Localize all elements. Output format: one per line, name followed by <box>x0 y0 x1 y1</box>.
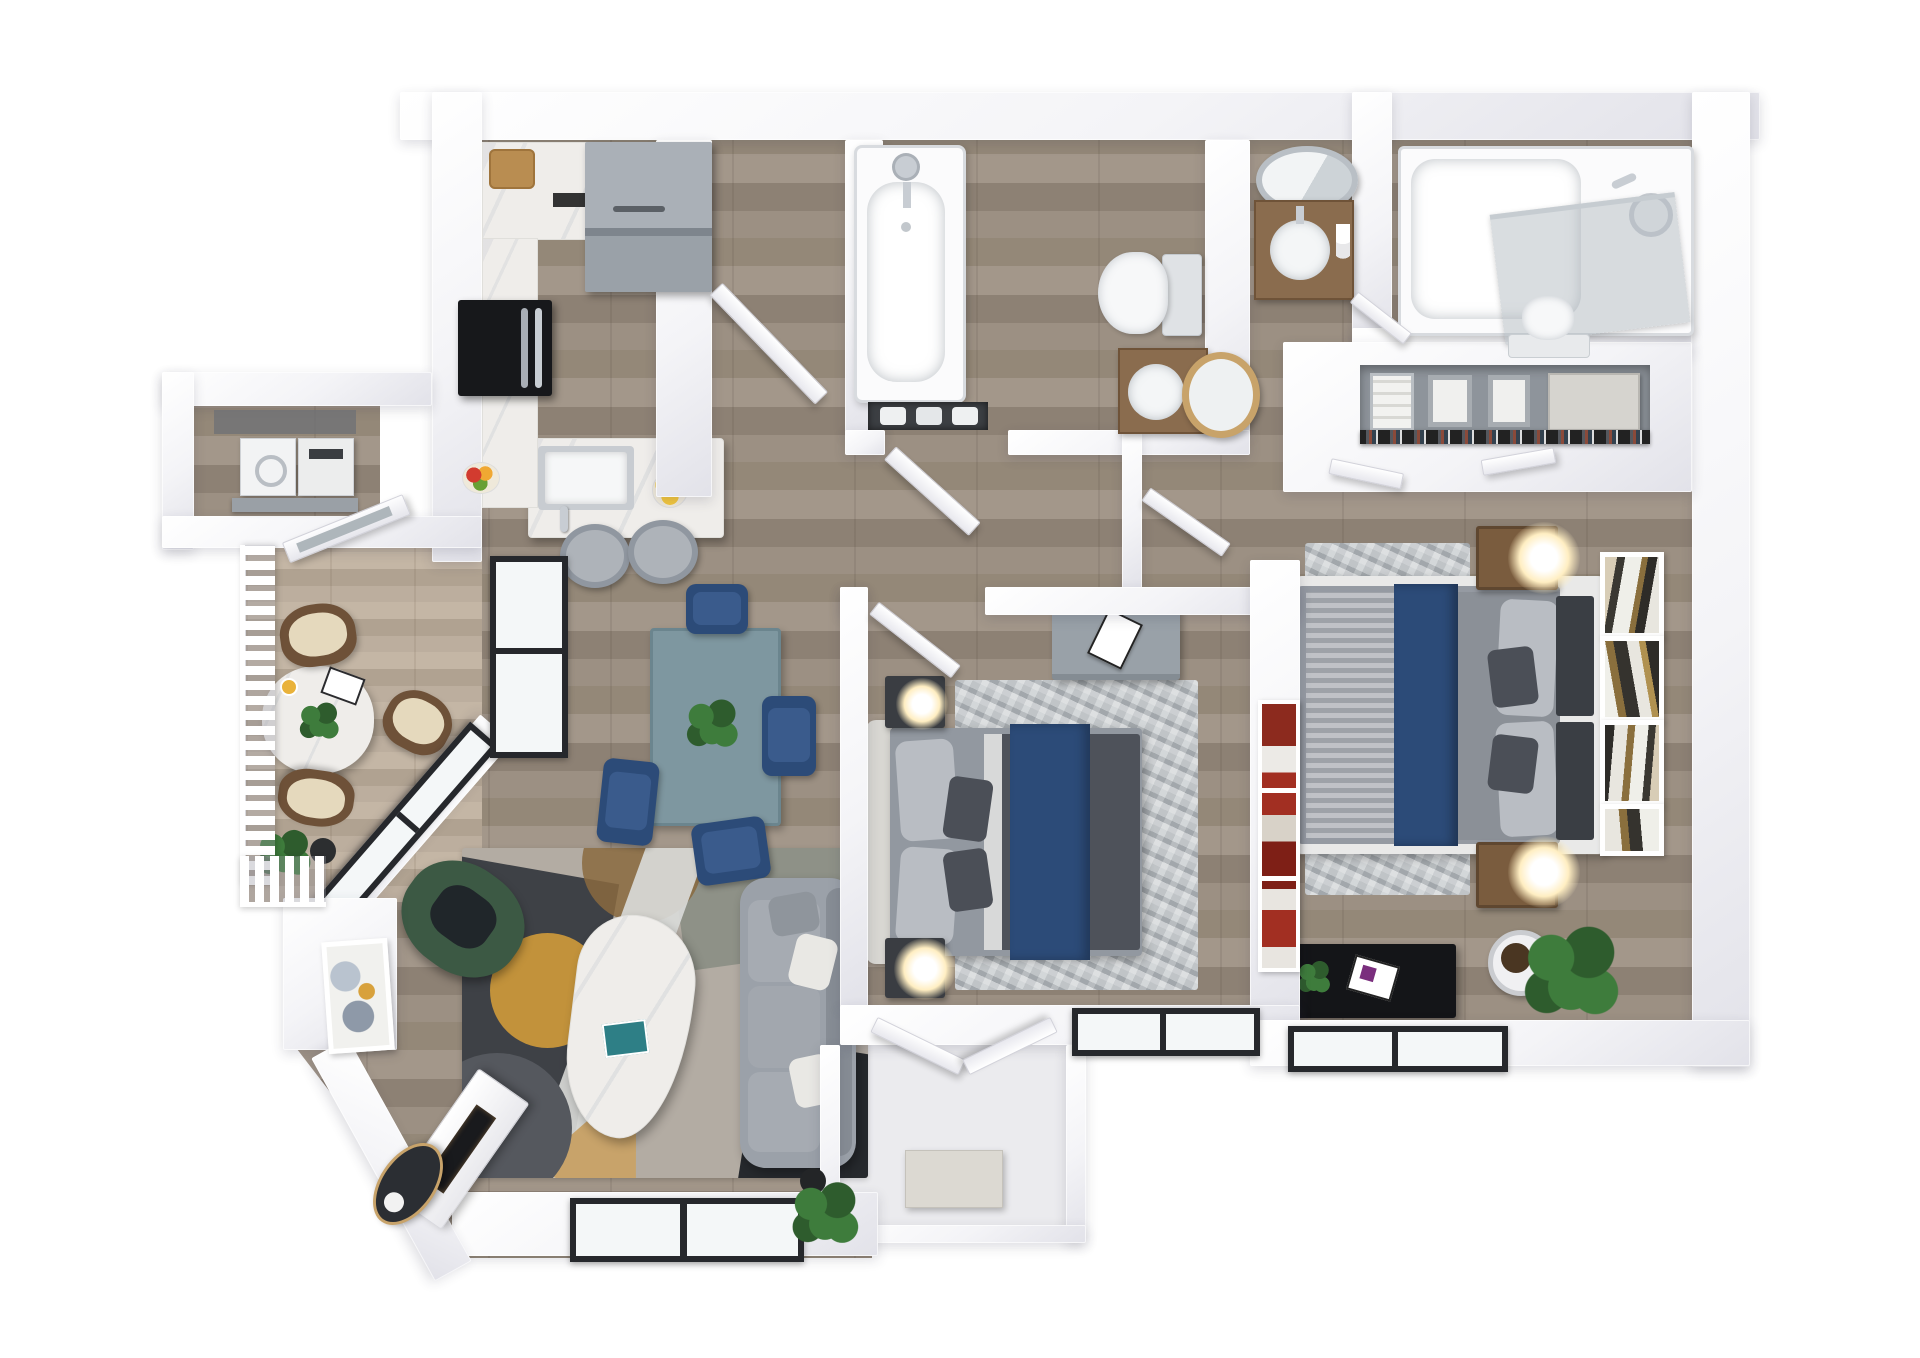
tub1-drain <box>901 222 911 232</box>
master-accent-pillow-1 <box>1487 645 1540 708</box>
wall-bed1-west <box>840 587 868 1007</box>
master-south-window <box>1288 1026 1508 1072</box>
bedroom1-desk <box>1052 604 1180 680</box>
bed1-navy-runner <box>1010 724 1090 960</box>
bath2-vanity-counter <box>1254 200 1354 300</box>
master-media-console <box>1288 944 1456 1018</box>
island-faucet <box>560 506 568 532</box>
desk-magazine <box>1087 608 1143 670</box>
console-magazine-cover <box>1359 965 1376 982</box>
tub1-shower-head <box>895 156 917 178</box>
bar-stool-1 <box>560 524 630 588</box>
laundry-shelf <box>232 498 358 512</box>
master-headboard-panel-1 <box>1556 596 1594 716</box>
refrigerator-black <box>458 300 552 396</box>
sofa-pillow-gray <box>767 890 821 938</box>
balcony-table-plant <box>296 700 342 744</box>
range-handle <box>613 206 665 212</box>
towel-roll-1 <box>880 407 906 425</box>
wall-top <box>400 92 1760 140</box>
towel-roll-2 <box>916 407 942 425</box>
cutting-board <box>489 149 535 189</box>
wall-hall-divider <box>1122 430 1142 590</box>
island-sink-basin <box>545 452 627 504</box>
bath2-sink <box>1270 220 1330 280</box>
bed1-accent-pillow-1 <box>942 775 994 843</box>
island-sink <box>538 446 634 510</box>
balcony-railing-left <box>240 545 275 885</box>
dining-chair-north <box>686 584 748 634</box>
tub1-basin <box>867 182 945 382</box>
wall-bath1-south-a <box>845 430 885 455</box>
red-art-divider-2 <box>1262 876 1296 881</box>
towel-roll-3 <box>952 407 978 425</box>
tub1-faucet <box>903 182 911 208</box>
closet-basket-2 <box>1488 375 1530 427</box>
toilet2-bowl <box>1522 296 1574 340</box>
kitchen-west-window <box>490 556 568 758</box>
living-wall-art <box>321 938 395 1054</box>
hood-edge <box>585 228 712 236</box>
bed1-lamp-north <box>896 678 948 730</box>
porch-bench <box>905 1150 1003 1208</box>
console-plant-sprig <box>1296 958 1332 998</box>
closet-towel-stack <box>1370 373 1414 431</box>
master-accent-pillow-2 <box>1487 733 1539 794</box>
bathtub-1 <box>854 145 966 403</box>
laundry-shadow-recess <box>214 410 356 434</box>
bath1-sink <box>1128 364 1184 420</box>
master-plant-leaves <box>1516 920 1626 1028</box>
tray-dish <box>380 1188 408 1216</box>
toilet1-tank <box>1162 254 1202 336</box>
closet-basket-1 <box>1428 375 1472 427</box>
balcony-table <box>262 666 374 774</box>
bar-stool-2 <box>628 520 698 584</box>
dryer-panel <box>309 449 343 459</box>
fridge-handle-1 <box>535 308 542 388</box>
master-gallery-frame-4 <box>1600 804 1664 856</box>
red-art-divider-1 <box>1262 788 1296 793</box>
bed1-accent-pillow-2 <box>942 847 994 913</box>
floor-plan-canvas <box>0 0 1920 1358</box>
bedroom1-red-art <box>1258 700 1300 972</box>
master-headboard-panel-2 <box>1556 722 1594 840</box>
master-gallery-frame-2 <box>1600 636 1664 722</box>
bedroom1-south-window <box>1072 1008 1260 1056</box>
living-plant-leaves <box>786 1178 864 1252</box>
bath2-faucet <box>1296 206 1304 224</box>
closet-hanging-clothes <box>1360 430 1650 444</box>
coffee-table-book <box>602 1019 650 1058</box>
bed1-headboard <box>866 720 892 964</box>
dining-centerpiece-plant <box>682 696 742 754</box>
wall-closet-top <box>162 372 432 406</box>
master-lamp-south <box>1508 836 1580 908</box>
wall-right-outer <box>1692 92 1750 1067</box>
bath2-toiletries <box>1336 224 1350 264</box>
balcony-railing-bottom <box>240 856 326 907</box>
green-armchair-cushion <box>422 876 506 957</box>
toilet-2 <box>1502 296 1594 358</box>
console-magazine <box>1346 954 1400 1001</box>
dining-chair-south <box>690 815 772 887</box>
toilet-1 <box>1098 246 1202 342</box>
washer-door <box>255 455 287 487</box>
dining-chair-west <box>596 757 660 846</box>
living-south-window <box>570 1198 804 1262</box>
bath1-round-mirror <box>1182 352 1260 438</box>
master-navy-runner <box>1394 584 1458 846</box>
bed1-lamp-south <box>894 938 956 1000</box>
balcony-cup <box>280 678 298 696</box>
master-blanket <box>1306 592 1394 838</box>
wall-porch-right <box>1066 1045 1086 1241</box>
toilet1-bowl <box>1098 252 1168 334</box>
bed1-sheet-fold <box>984 734 1002 950</box>
master-gallery-frame-1 <box>1600 552 1664 638</box>
fridge-handle-2 <box>521 308 528 388</box>
tub2-hand-shower <box>1610 172 1637 190</box>
washer <box>240 438 296 496</box>
dining-chair-east <box>762 696 816 776</box>
dryer <box>298 438 354 496</box>
closet-shelf-back <box>1360 365 1650 433</box>
master-lamp-north <box>1508 522 1580 594</box>
master-gallery-frame-3 <box>1600 720 1664 806</box>
closet-storage-box <box>1548 373 1640 431</box>
range-with-hood <box>585 142 712 292</box>
towel-niche <box>868 402 988 430</box>
fruit-bowl <box>462 462 500 494</box>
